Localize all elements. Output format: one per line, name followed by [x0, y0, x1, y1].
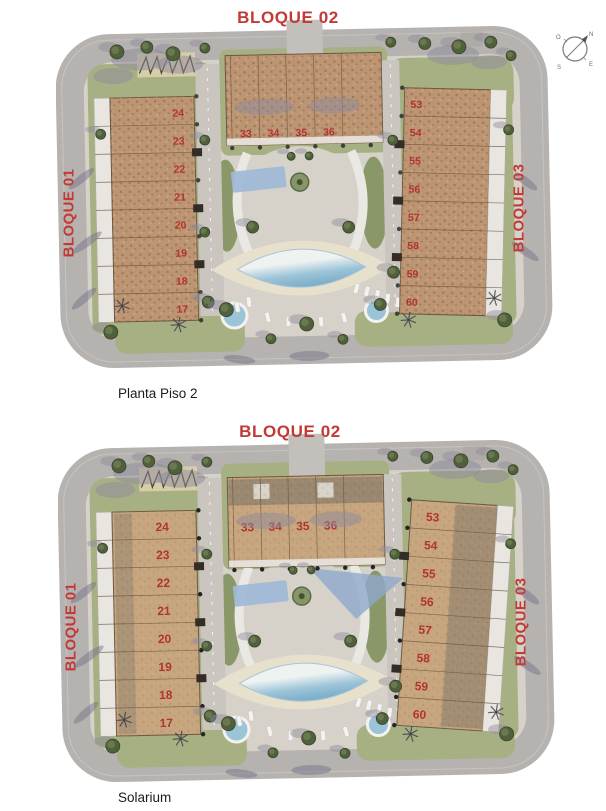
compass-s-label: S — [557, 65, 561, 71]
unit-number-planta-piso-2-60: 60 — [406, 297, 418, 309]
unit-number-solarium-22: 22 — [157, 576, 171, 590]
unit-number-solarium-18: 18 — [159, 688, 173, 702]
plan-scene: 2423222120191817333435365354555657585960 — [58, 429, 555, 783]
site-plan-render-solarium: 2423222120191817333435365354555657585960 — [58, 420, 558, 786]
unit-number-solarium-20: 20 — [158, 632, 172, 646]
unit-number-planta-piso-2-35: 35 — [295, 127, 307, 139]
unit-number-solarium-58: 58 — [416, 651, 431, 666]
unit-number-solarium-59: 59 — [414, 679, 429, 694]
unit-number-solarium-21: 21 — [157, 604, 171, 618]
compass-e-label: E — [589, 62, 593, 68]
brochure-page: N O E S 24232221201918173334353653545556… — [0, 0, 606, 811]
unit-number-planta-piso-2-17: 17 — [176, 303, 188, 315]
unit-number-planta-piso-2-57: 57 — [408, 212, 420, 224]
site-plan-render-piso-2: 2423222120191817333435365354555657585960 — [56, 6, 556, 372]
unit-number-planta-piso-2-22: 22 — [173, 164, 185, 176]
plan-caption-piso-2: Planta Piso 2 — [118, 386, 198, 401]
building-bloque-01: 2423222120191817 — [96, 508, 208, 739]
unit-number-solarium-35: 35 — [296, 519, 310, 533]
building-bloque-01: 2423222120191817 — [94, 94, 206, 325]
unit-number-planta-piso-2-55: 55 — [409, 155, 421, 167]
unit-number-planta-piso-2-53: 53 — [410, 99, 422, 111]
unit-number-planta-piso-2-18: 18 — [176, 275, 188, 287]
compass-icon: N O E S — [549, 22, 601, 74]
unit-number-planta-piso-2-21: 21 — [174, 192, 186, 204]
unit-number-solarium-54: 54 — [424, 538, 439, 553]
block-02-label: BLOQUE 02 — [56, 8, 520, 28]
unit-number-planta-piso-2-59: 59 — [407, 268, 419, 280]
compass-o-label: O — [556, 35, 561, 41]
block-02-label: BLOQUE 02 — [58, 422, 522, 442]
unit-number-planta-piso-2-24: 24 — [172, 108, 184, 120]
unit-number-planta-piso-2-34: 34 — [268, 128, 280, 140]
unit-number-solarium-23: 23 — [156, 548, 170, 562]
unit-number-solarium-57: 57 — [418, 623, 433, 638]
unit-number-planta-piso-2-20: 20 — [175, 220, 187, 232]
unit-number-planta-piso-2-36: 36 — [323, 126, 335, 138]
block-01-label: BLOQUE 01 — [61, 169, 78, 258]
building-bloque-03: 5354555657585960 — [391, 85, 507, 318]
compass-n-label: N — [589, 32, 593, 38]
unit-number-solarium-19: 19 — [158, 660, 172, 674]
unit-number-planta-piso-2-19: 19 — [175, 248, 187, 260]
site-plan-solarium: 2423222120191817333435365354555657585960… — [58, 420, 558, 810]
unit-number-solarium-24: 24 — [155, 520, 169, 534]
unit-number-solarium-53: 53 — [426, 510, 441, 525]
unit-number-planta-piso-2-23: 23 — [173, 136, 185, 148]
plan-scene: 2423222120191817333435365354555657585960 — [56, 15, 553, 369]
unit-number-solarium-55: 55 — [422, 566, 437, 581]
unit-number-solarium-17: 17 — [160, 716, 174, 730]
unit-number-solarium-56: 56 — [420, 594, 435, 609]
unit-number-planta-piso-2-33: 33 — [240, 128, 252, 140]
plan-caption-solarium: Solarium — [118, 790, 171, 805]
unit-number-planta-piso-2-58: 58 — [407, 240, 419, 252]
unit-number-planta-piso-2-54: 54 — [410, 127, 422, 139]
block-03-label: BLOQUE 03 — [513, 578, 530, 667]
unit-number-solarium-60: 60 — [412, 707, 427, 722]
compass-rose: N O E S — [549, 22, 601, 74]
block-03-label: BLOQUE 03 — [511, 164, 528, 253]
unit-number-planta-piso-2-56: 56 — [408, 184, 420, 196]
block-01-label: BLOQUE 01 — [63, 583, 80, 672]
site-plan-planta-piso-2: 2423222120191817333435365354555657585960… — [56, 6, 556, 410]
